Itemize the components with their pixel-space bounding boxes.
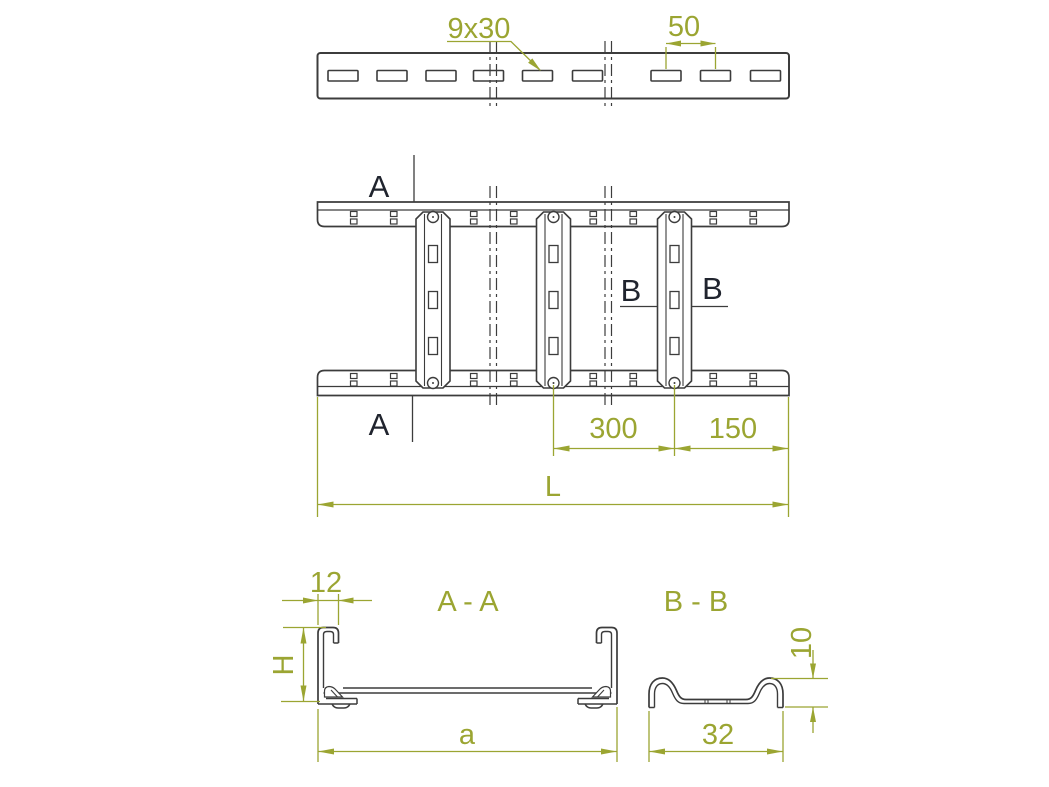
rung	[416, 212, 450, 389]
cable-ladder-technical-drawing: 9x30 50	[0, 0, 1049, 787]
rung-width-dimension: 32	[649, 711, 783, 762]
section-bb-profile	[649, 678, 783, 708]
total-length-dimension: L	[545, 471, 561, 503]
plan-view-ladder: A A B B 300 150 L	[318, 155, 790, 517]
svg-text:32: 32	[702, 719, 734, 751]
section-aa-view: A - A 12 H	[268, 567, 617, 762]
section-a-label-bottom: A	[369, 407, 390, 442]
slot-size-text: 9x30	[448, 13, 511, 45]
width-dimension-a: a	[318, 707, 617, 762]
slot-pitch-text: 50	[668, 11, 700, 43]
plan-dimensions: 300 150 L	[318, 385, 789, 517]
rung-height-dimension: 10	[771, 627, 828, 733]
section-b-label-left: B	[621, 273, 642, 308]
end-spacing-dimension: 150	[709, 413, 757, 445]
section-aa-title: A - A	[437, 586, 499, 618]
section-a-marks: A A	[369, 155, 414, 442]
section-bb-title: B - B	[664, 586, 728, 618]
rung-spacing-dimension: 300	[589, 413, 637, 445]
section-b-label-right: B	[702, 271, 723, 306]
top-view-side-rail: 9x30 50	[318, 11, 790, 110]
section-aa-profile	[318, 628, 617, 709]
flange-width-dimension: 12	[282, 567, 372, 625]
svg-text:H: H	[268, 655, 300, 676]
section-a-label-top: A	[369, 169, 390, 204]
svg-text:12: 12	[310, 567, 342, 599]
rung	[537, 212, 571, 389]
section-bb-view: B - B 10 32	[649, 586, 828, 762]
svg-text:a: a	[459, 719, 476, 751]
rung	[658, 212, 692, 389]
